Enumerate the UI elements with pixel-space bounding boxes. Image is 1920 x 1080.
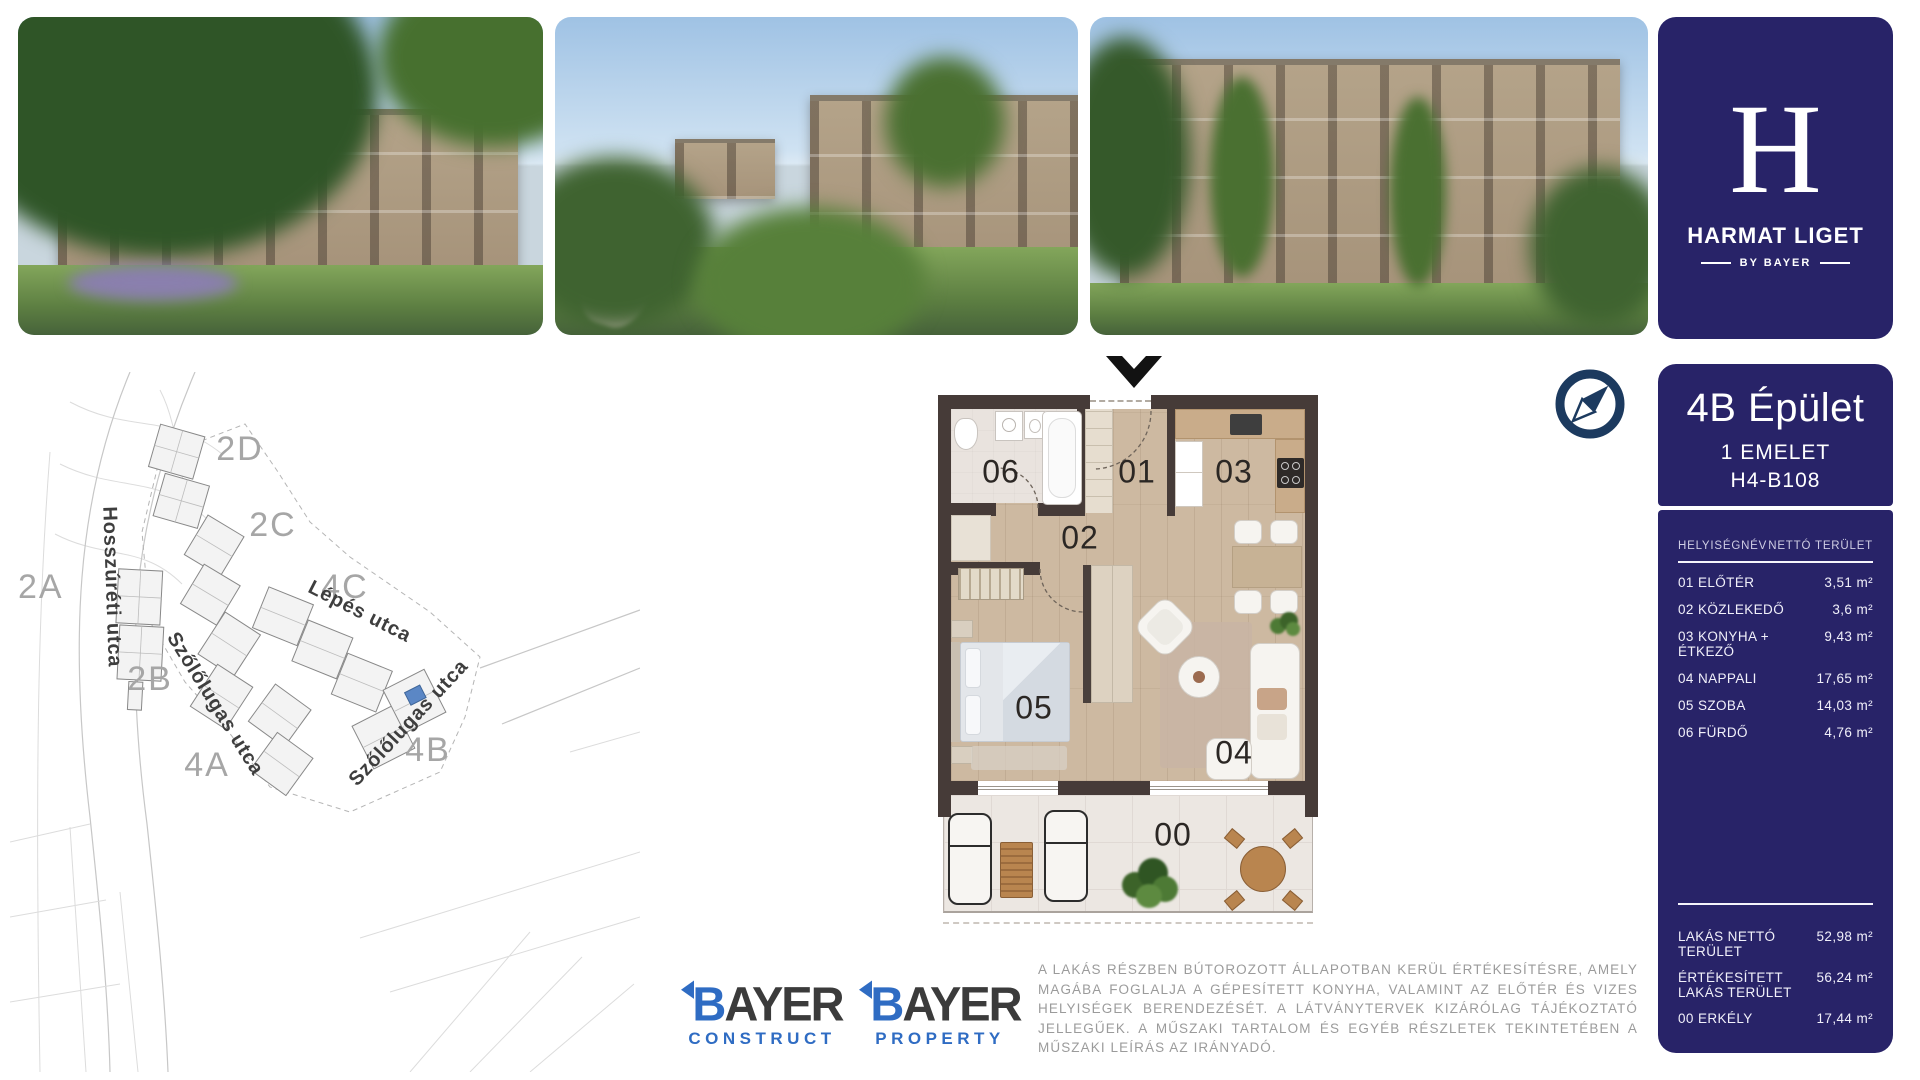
green-facade-vines [1390, 97, 1446, 287]
summary-row: 00 ERKÉLY 17,44 m² [1678, 1011, 1873, 1026]
area-table-card: HELYISÉGNÉV NETTÓ TERÜLET 01 ELŐTÉR 3,51… [1658, 510, 1893, 1053]
summary-rule [1678, 903, 1873, 905]
room-area: 3,6 m² [1832, 602, 1873, 617]
zone-label-4b: 4B [405, 731, 451, 769]
site-plan-map: 2D 2C 2A 4C 2B 4A 4B Hosszúréti utca Lép… [10, 372, 640, 1072]
apartment-floor-plan: 06 01 03 02 05 04 00 [938, 358, 1318, 935]
road-edge [480, 610, 640, 724]
exterior-render-photo-1 [18, 17, 543, 335]
bayer-b: B [870, 976, 902, 1030]
table-row: 05 SZOBA 14,03 m² [1678, 698, 1873, 713]
room-label-kitchen: 03 [1215, 454, 1253, 491]
room-name: 06 FÜRDŐ [1678, 725, 1748, 740]
table-row: 01 ELŐTÉR 3,51 m² [1678, 575, 1873, 590]
brand-monogram-h: H [1658, 89, 1893, 209]
building-cluster-2d [136, 424, 222, 528]
byline-text: BY BAYER [1740, 257, 1812, 269]
zone-label-4a: 4A [184, 746, 230, 784]
brand-byline: BY BAYER [1658, 257, 1893, 269]
unit-building-title: 4B Épület [1658, 386, 1893, 431]
table-row: 06 FÜRDŐ 4,76 m² [1678, 725, 1873, 740]
room-label-bathroom: 06 [982, 454, 1020, 491]
summary-area: 56,24 m² [1817, 970, 1873, 985]
bayer-construct-logo: BAYER CONSTRUCT [681, 981, 843, 1049]
parcel-lines [10, 824, 138, 1072]
zone-label-2d: 2D [216, 430, 263, 468]
area-table-header: HELYISÉGNÉV NETTÓ TERÜLET [1678, 540, 1873, 552]
room-area: 9,43 m² [1824, 629, 1873, 659]
parcel-line [38, 452, 50, 1072]
unit-floor: 1 EMELET [1658, 441, 1893, 465]
lavender-bed [68, 265, 238, 301]
room-name: 05 SZOBA [1678, 698, 1746, 713]
room-area: 17,65 m² [1817, 671, 1873, 686]
room-name: 04 NAPPALI [1678, 671, 1757, 686]
room-label-balcony: 00 [1154, 817, 1192, 854]
bayer-rest: AYER [902, 976, 1020, 1030]
zone-label-2b: 2B [127, 660, 173, 698]
summary-row: LAKÁS NETTÓ TERÜLET 52,98 m² [1678, 929, 1873, 959]
summary-name: LAKÁS NETTÓ TERÜLET [1678, 929, 1817, 959]
room-label-hallway: 02 [1061, 520, 1099, 557]
table-rule [1678, 561, 1873, 563]
parcel-lines [360, 732, 640, 1072]
col-room-name: HELYISÉGNÉV [1678, 540, 1767, 552]
table-row: 02 KÖZLEKEDŐ 3,6 m² [1678, 602, 1873, 617]
bayer-property-logo: BAYER PROPERTY [856, 981, 1024, 1049]
room-label-entry: 01 [1118, 454, 1156, 491]
table-row: 04 NAPPALI 17,65 m² [1678, 671, 1873, 686]
room-area: 4,76 m² [1824, 725, 1873, 740]
room-name: 02 KÖZLEKEDŐ [1678, 602, 1784, 617]
tree-canopy-icon [885, 57, 1005, 187]
room-name: 03 KONYHA + ÉTKEZŐ [1678, 629, 1824, 659]
exterior-render-photo-2 [555, 17, 1078, 335]
summary-name: ÉRTÉKESÍTETT LAKÁS TERÜLET [1678, 970, 1817, 1000]
col-net-area: NETTÓ TERÜLET [1768, 540, 1873, 552]
table-row: 03 KONYHA + ÉTKEZŐ 9,43 m² [1678, 629, 1873, 659]
bayer-sub-label: PROPERTY [856, 1029, 1024, 1049]
exterior-render-photo-3 [1090, 17, 1648, 335]
byline-rule-left [1701, 262, 1731, 264]
building-cluster-2c [162, 515, 263, 625]
summary-area: 52,98 m² [1817, 929, 1873, 944]
unit-code: H4-B108 [1658, 469, 1893, 493]
zone-label-2a: 2A [18, 568, 64, 606]
room-label-living: 04 [1215, 735, 1253, 772]
room-area: 14,03 m² [1817, 698, 1873, 713]
legal-disclaimer: A LAKÁS RÉSZBEN BÚTOROZOTT ÁLLAPOTBAN KE… [1038, 960, 1638, 1058]
bayer-wordmark: BAYER [681, 981, 843, 1027]
road-edge [79, 372, 130, 1072]
summary-name: 00 ERKÉLY [1678, 1011, 1753, 1026]
green-facade-vines [1210, 77, 1274, 277]
byline-rule-right [1820, 262, 1850, 264]
room-area: 3,51 m² [1824, 575, 1873, 590]
summary-rows: LAKÁS NETTÓ TERÜLET 52,98 m² ÉRTÉKESÍTET… [1678, 918, 1873, 1026]
bayer-wordmark: BAYER [856, 981, 1024, 1027]
unit-header-card: 4B Épület 1 EMELET H4-B108 [1658, 364, 1893, 506]
street-label-hosszureti: Hosszúréti utca [98, 506, 126, 668]
summary-area: 17,44 m² [1817, 1011, 1873, 1026]
brand-title: HARMAT LIGET [1658, 223, 1893, 249]
zone-label-2c: 2C [249, 506, 296, 544]
summary-row: ÉRTÉKESÍTETT LAKÁS TERÜLET 56,24 m² [1678, 970, 1873, 1000]
compass-icon [1552, 366, 1628, 442]
room-name: 01 ELŐTÉR [1678, 575, 1754, 590]
bayer-b: B [692, 976, 724, 1030]
door-swing-arcs [938, 358, 1318, 935]
room-label-bedroom: 05 [1015, 690, 1053, 727]
brand-logo-panel: H HARMAT LIGET BY BAYER [1658, 17, 1893, 339]
bayer-sub-label: CONSTRUCT [681, 1029, 843, 1049]
bayer-rest: AYER [724, 976, 842, 1030]
